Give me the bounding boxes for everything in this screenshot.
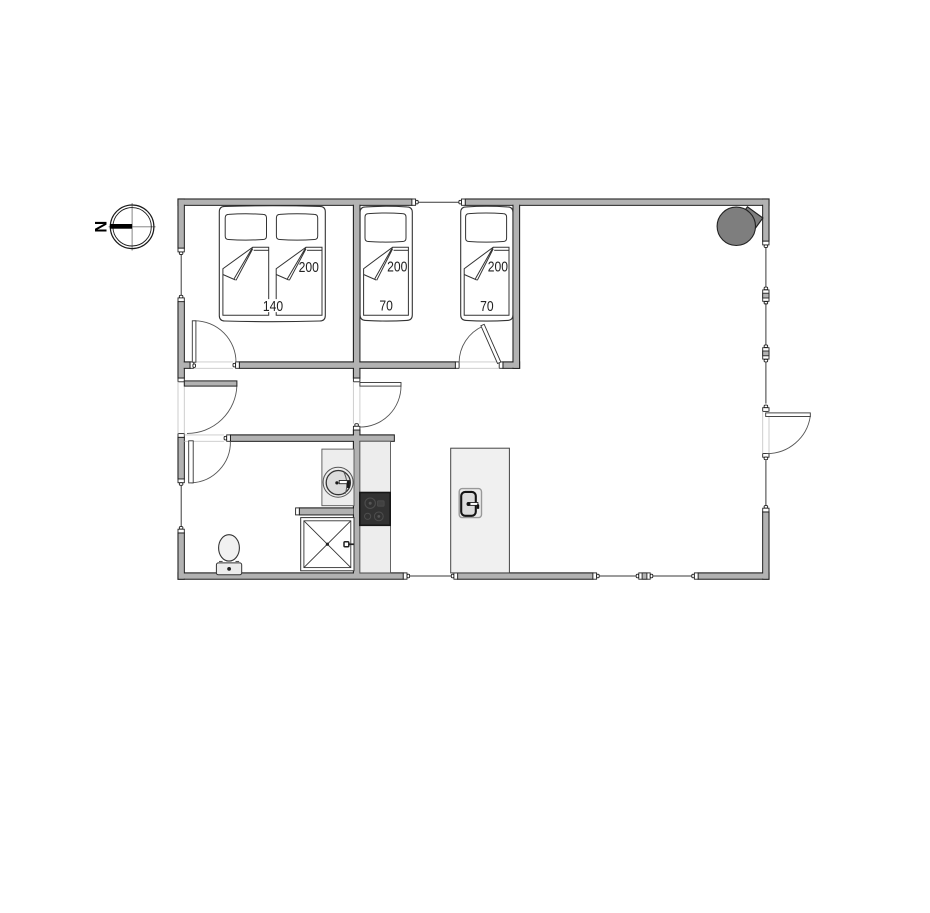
svg-text:200: 200 — [387, 258, 407, 274]
svg-text:200: 200 — [488, 258, 508, 274]
svg-text:70: 70 — [480, 298, 493, 314]
svg-text:140: 140 — [263, 298, 283, 314]
svg-text:200: 200 — [299, 259, 319, 275]
svg-text:70: 70 — [379, 297, 392, 313]
svg-text:N: N — [91, 221, 109, 233]
